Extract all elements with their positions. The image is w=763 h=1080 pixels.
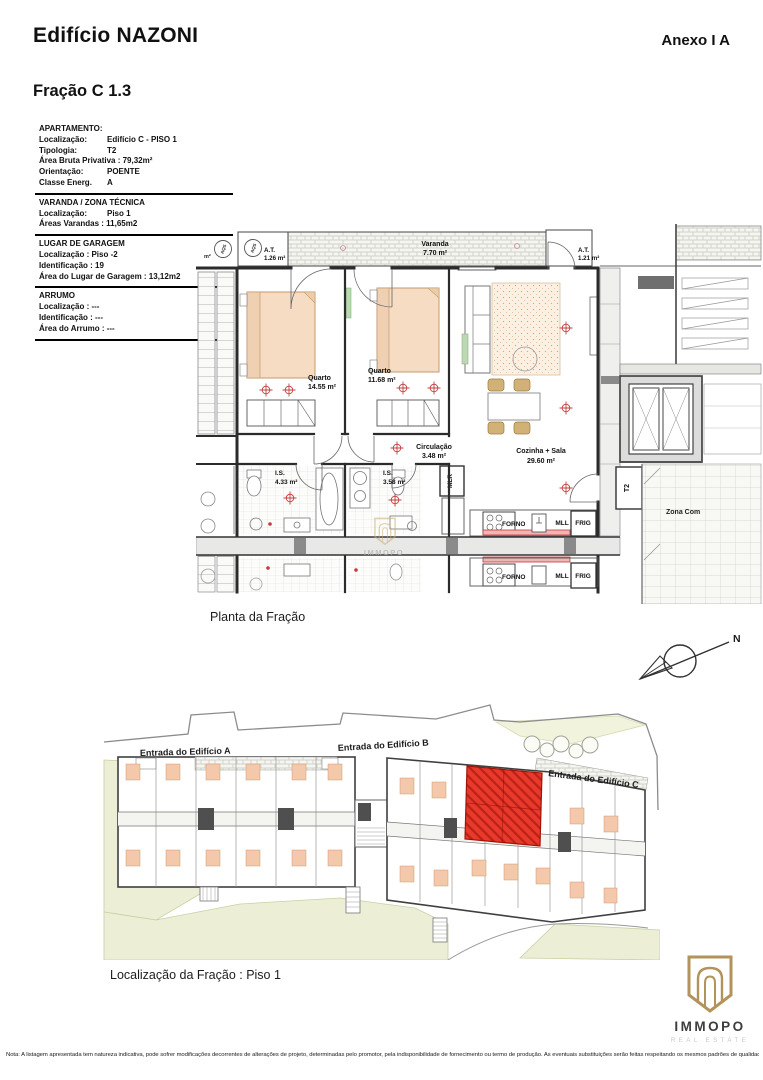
living-room (462, 283, 598, 434)
logo-shield-icon (689, 957, 731, 1011)
room-label-quarto1: Quarto (308, 375, 331, 382)
watermark-text: IMMOPO (364, 548, 404, 557)
info-label: Localização: (39, 135, 107, 146)
neighbour-area-label: m² (204, 253, 211, 260)
common-areas: T2 Zona Com (600, 224, 761, 604)
info-label: Orientação: (39, 167, 107, 178)
plan-caption: Planta da Fração (210, 610, 305, 624)
page-title: Edifício NAZONI (33, 24, 198, 48)
label-forno-2: FORNO (502, 574, 525, 581)
room-area-at-left: 1.26 m² (264, 255, 285, 262)
info-label: Tipologia: (39, 146, 107, 157)
room-label-is2: I.S. (383, 470, 393, 477)
site-caption: Localização da Fração : Piso 1 (110, 968, 281, 982)
info-label: Área do Arrumo : --- (39, 324, 119, 335)
info-label: Identificação : --- (39, 313, 107, 324)
label-mll: MLL (555, 520, 568, 527)
document-page: Edifício NAZONI Anexo I A Fração C 1.3 A… (0, 0, 763, 1080)
compass-icon: N (632, 628, 747, 690)
info-label: Área Bruta Privativa : 79,32m² (39, 156, 156, 167)
info-block-apartamento: APARTAMENTO: Localização:Edifício C - PI… (35, 121, 233, 195)
info-value: A (107, 178, 113, 189)
info-label: Localização: (39, 209, 107, 220)
entrance-label-b: Entrada do Edifício B (338, 737, 430, 753)
room-label-at-right: A.T. (578, 247, 589, 254)
info-label: Identificação : 19 (39, 261, 108, 272)
info-label: Localização : --- (39, 302, 107, 313)
label-frig-2: FRIG (575, 573, 591, 580)
info-value: Piso 1 (107, 209, 131, 220)
info-label: Área do Lugar de Garagem : 13,12m2 (39, 272, 184, 283)
room-area-is1: 4.33 m² (275, 479, 298, 486)
room-area-at-right: 1.21 m² (578, 255, 599, 262)
room-area-varanda: 7.70 m² (423, 250, 448, 257)
room-label-quarto2: Quarto (368, 368, 391, 375)
room-label-circulacao: Circulação (416, 444, 452, 451)
room-label-at-left: A.T. (264, 247, 275, 254)
bedroom-1 (240, 292, 315, 426)
structural-band (196, 537, 620, 555)
dining-table (488, 393, 540, 420)
room-area-quarto2: 11.68 m² (368, 377, 396, 384)
highlighted-unit (465, 766, 542, 846)
room-label-cozinha: Cozinha + Sala (516, 448, 566, 455)
room-area-quarto1: 14.55 m² (308, 384, 337, 391)
room-area-circulacao: 3.48 m² (422, 453, 447, 460)
label-forno: FORNO (502, 521, 525, 528)
compass-north-label: N (733, 633, 741, 645)
label-t2: T2 (624, 484, 631, 492)
logo-tagline: REAL ESTATE (671, 1037, 749, 1044)
footer-note: Nota: A listagem apresentada tem naturez… (6, 1052, 759, 1058)
rug (492, 283, 560, 375)
info-label: Classe Energ. (39, 178, 107, 189)
label-mll-2: MLL (555, 573, 568, 580)
immopo-logo: IMMOPO REAL ESTATE (660, 950, 760, 1050)
label-frig: FRIG (575, 520, 591, 527)
bedroom-2 (346, 288, 439, 426)
info-value: POENTE (107, 167, 140, 178)
annex-label: Anexo I A (540, 32, 730, 49)
trees (524, 736, 598, 758)
zona-comum-floor (642, 464, 761, 604)
info-label: Localização : Piso -2 (39, 250, 122, 261)
balcony-strip: AQS AQS A.T. 1.26 m² Varanda 7.70 m² A.T… (215, 230, 600, 266)
info-block-title: VARANDA / ZONA TÉCNICA (39, 198, 233, 209)
kitchen: FORNO MLL FRIG (470, 510, 598, 536)
mlr-closet: MLR (440, 466, 464, 534)
fraction-title: Fração C 1.3 (33, 82, 131, 101)
room-area-is2: 3.58 m² (383, 479, 406, 486)
room-label-is1: I.S. (275, 470, 285, 477)
room-label-varanda: Varanda (421, 241, 448, 248)
info-label: Áreas Varandas : 11,65m2 (39, 219, 141, 230)
site-plan: Entrada do Edifício A Entrada do Edifíci… (100, 700, 660, 960)
entrance-label-a: Entrada do Edifício A (140, 746, 231, 758)
info-value: T2 (107, 146, 116, 157)
link-block (355, 800, 387, 847)
room-area-cozinha: 29.60 m² (527, 458, 556, 465)
counter-highlight (483, 530, 570, 535)
sofa (465, 286, 490, 373)
info-value: Edifício C - PISO 1 (107, 135, 177, 146)
logo-name: IMMOPO (674, 1019, 745, 1034)
label-zona-comum: Zona Com (666, 509, 700, 516)
floor-plan: m² AQS AQS A.T. 1.26 m² Varanda 7.70 m² … (196, 224, 763, 604)
info-block-title: APARTAMENTO: (39, 124, 233, 135)
mirrored-unit: FORNO MLL FRIG (239, 557, 598, 592)
